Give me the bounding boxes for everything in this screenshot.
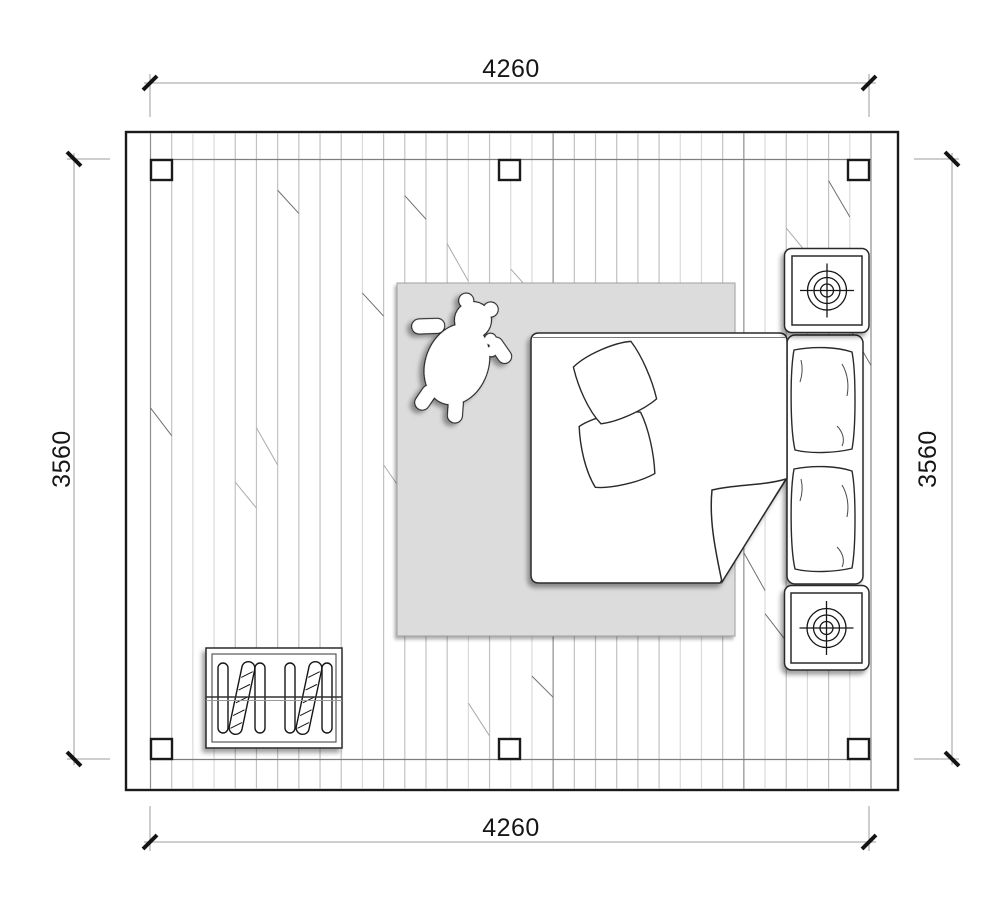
dim-right-label: 3560: [914, 430, 942, 488]
column: [848, 160, 869, 180]
headboard-pillow: [791, 467, 855, 572]
column: [499, 739, 520, 759]
dimension-left: 3560: [48, 152, 110, 766]
dim-bottom-label: 4260: [482, 814, 540, 842]
floor-plan-page: 4260 4260 3560 3560: [0, 0, 1000, 915]
dim-left-label: 3560: [48, 430, 76, 488]
column: [151, 160, 172, 180]
column: [499, 160, 520, 180]
radiator: [206, 648, 342, 748]
dimension-bottom: 4260: [143, 806, 876, 851]
bed: [531, 333, 863, 584]
headboard-pillow: [791, 348, 855, 453]
nightstand-top: [785, 249, 870, 333]
floor-plan-canvas: 4260 4260 3560 3560: [0, 0, 1000, 915]
dim-top-label: 4260: [482, 55, 540, 83]
dimension-right: 3560: [914, 152, 959, 766]
column: [151, 739, 172, 759]
dimension-top: 4260: [143, 55, 876, 117]
nightstand-bottom: [785, 586, 870, 671]
column: [848, 739, 869, 759]
